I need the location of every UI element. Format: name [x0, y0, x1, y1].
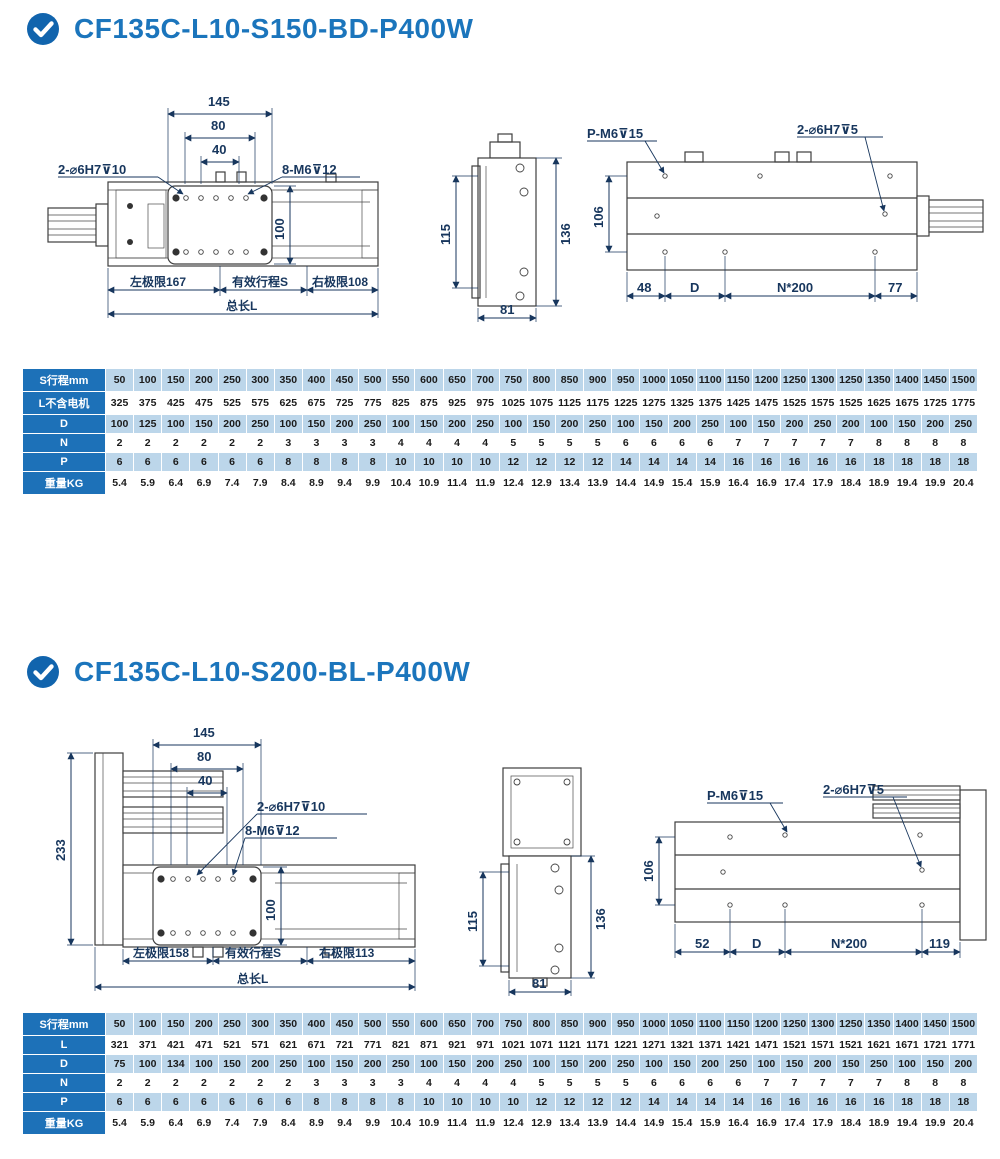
spec-cell: 6: [247, 1093, 274, 1111]
spec-cell: 6: [106, 1093, 133, 1111]
spec-cell: 4: [472, 1074, 499, 1092]
spec-cell: 1225: [612, 392, 639, 414]
spec-cell: 500: [359, 1013, 386, 1035]
spec-cell: 8: [331, 1093, 358, 1111]
spec-cell: 12.4: [500, 1112, 527, 1134]
seg-119: 119: [929, 936, 950, 951]
spec-cell: 875: [415, 392, 442, 414]
spec-cell: 2: [247, 434, 274, 452]
spec-cell: 150: [781, 1055, 808, 1073]
spec-cell: 150: [640, 415, 667, 433]
spec-cell: 12: [556, 453, 583, 471]
spec-cell: 200: [472, 1055, 499, 1073]
spec-cell: 200: [809, 1055, 836, 1073]
spec-cell: 14: [669, 453, 696, 471]
spec-cell: 950: [612, 1013, 639, 1035]
spec-cell: 3: [331, 434, 358, 452]
spec-cell: 100: [528, 1055, 555, 1073]
spec-cell: 1775: [950, 392, 977, 414]
spec-cell: 5: [528, 434, 555, 452]
spec-cell: 200: [359, 1055, 386, 1073]
spec-cell: 1571: [809, 1036, 836, 1054]
spec-cell: 13.9: [584, 1112, 611, 1134]
spec-cell: 125: [134, 415, 161, 433]
spec-cell: 600: [415, 1013, 442, 1035]
spec-cell: 1525: [837, 392, 864, 414]
page: { "page": { "accent": "#1b75bc", "check_…: [0, 0, 1000, 1159]
spec-cell: 100: [162, 415, 189, 433]
thread-callout: P-M6⊽15: [587, 126, 643, 141]
spec-cell: 5: [556, 434, 583, 452]
spec-cell: 1175: [584, 392, 611, 414]
spec-cell: 7.9: [247, 1112, 274, 1134]
right-limit-label: 右极限108: [311, 274, 368, 289]
spec-cell: 475: [190, 392, 217, 414]
dim-81: 81: [532, 976, 546, 991]
spec-cell: 16.9: [753, 472, 780, 494]
spec-cell: 921: [444, 1036, 471, 1054]
spec-cell: 10: [500, 1093, 527, 1111]
spec-cell: 1271: [640, 1036, 667, 1054]
spec-cell: 1150: [725, 369, 752, 391]
spec-row: L321371421471521571621671721771821871921…: [23, 1036, 977, 1054]
row-label: D: [23, 415, 105, 433]
spec-cell: 8: [303, 1093, 330, 1111]
spec-cell: 10.4: [387, 472, 414, 494]
row-label: D: [23, 1055, 105, 1073]
spec-cell: 300: [247, 1013, 274, 1035]
row-label: N: [23, 1074, 105, 1092]
spec-cell: 150: [556, 1055, 583, 1073]
spec-cell: 2: [162, 1074, 189, 1092]
dim-40: 40: [212, 142, 226, 157]
spec-cell: 6: [190, 453, 217, 471]
drawing1-side-view: 115 136 81: [428, 130, 603, 330]
spec-cell: 8: [894, 1074, 921, 1092]
spec-cell: 16: [781, 453, 808, 471]
spec-cell: 7: [837, 1074, 864, 1092]
spec-cell: 14.9: [640, 1112, 667, 1134]
spec-cell: 8.4: [275, 472, 302, 494]
spec-cell: 950: [612, 369, 639, 391]
spec-cell: 14: [612, 453, 639, 471]
spec-cell: 6: [219, 1093, 246, 1111]
spec-cell: 6: [697, 1074, 724, 1092]
spec-cell: 20.4: [950, 472, 977, 494]
spec-cell: 1350: [865, 369, 892, 391]
spec-cell: 150: [162, 369, 189, 391]
spec-cell: 2: [134, 1074, 161, 1092]
spec-cell: 100: [640, 1055, 667, 1073]
spec-cell: 150: [922, 1055, 949, 1073]
spec-cell: 13.9: [584, 472, 611, 494]
spec-cell: 7: [837, 434, 864, 452]
spec-cell: 100: [134, 369, 161, 391]
spec-cell: 18: [894, 453, 921, 471]
holes-callout: 2-⌀6H7⊽10: [257, 799, 325, 814]
row-label: N: [23, 434, 105, 452]
section-1-header: CF135C-L10-S150-BD-P400W: [26, 12, 473, 46]
drawing1-bottom-view: P-M6⊽15 2-⌀6H7⊽5 106 48 D N*200 77: [585, 110, 995, 328]
spec-cell: 200: [190, 369, 217, 391]
spec-cell: 200: [922, 415, 949, 433]
spec-row: N2222222333344445555666677777888: [23, 1074, 977, 1092]
spec-cell: 1350: [865, 1013, 892, 1035]
spec-cell: 5: [584, 1074, 611, 1092]
row-label: S行程mm: [23, 1013, 105, 1035]
dim-145: 145: [208, 94, 230, 109]
spec-cell: 450: [331, 369, 358, 391]
spec-cell: 471: [190, 1036, 217, 1054]
spec-cell: 100: [303, 1055, 330, 1073]
spec-cell: 1050: [669, 369, 696, 391]
spec-cell: 2: [190, 434, 217, 452]
spec-row: L不含电机32537542547552557562567572577582587…: [23, 392, 977, 414]
spec-table-2: S行程mm50100150200250300350400450500550600…: [22, 1012, 978, 1135]
spec-cell: 8: [387, 1093, 414, 1111]
spec-cell: 1275: [640, 392, 667, 414]
spec-cell: 1450: [922, 369, 949, 391]
spec-cell: 100: [190, 1055, 217, 1073]
dim-106: 106: [591, 206, 606, 228]
spec-cell: 5.9: [134, 472, 161, 494]
spec-cell: 721: [331, 1036, 358, 1054]
spec-cell: 7: [809, 434, 836, 452]
spec-cell: 7.9: [247, 472, 274, 494]
spec-row: P666666888810101010121212121414141416161…: [23, 453, 977, 471]
spec-cell: 6.9: [190, 472, 217, 494]
spec-cell: 6: [612, 434, 639, 452]
dim-81: 81: [500, 302, 514, 317]
spec-cell: 8: [894, 434, 921, 452]
spec-row: S行程mm50100150200250300350400450500550600…: [23, 1013, 977, 1035]
spec-cell: 4: [415, 1074, 442, 1092]
spec-cell: 1100: [697, 369, 724, 391]
spec-cell: 250: [697, 415, 724, 433]
spec-cell: 6.4: [162, 472, 189, 494]
spec-cell: 7: [781, 434, 808, 452]
spec-cell: 8.4: [275, 1112, 302, 1134]
spec-cell: 1500: [950, 369, 977, 391]
spec-cell: 16.9: [753, 1112, 780, 1134]
spec-cell: 1521: [837, 1036, 864, 1054]
spec-cell: 250: [275, 1055, 302, 1073]
spec-cell: 650: [444, 369, 471, 391]
spec-cell: 6: [640, 1074, 667, 1092]
screws-callout: 8-M6⊽12: [282, 162, 337, 177]
spec-cell: 250: [359, 415, 386, 433]
spec-cell: 871: [415, 1036, 442, 1054]
spec-cell: 16.4: [725, 472, 752, 494]
spec-cell: 7.4: [219, 472, 246, 494]
spec-cell: 15.9: [697, 1112, 724, 1134]
spec-cell: 12.9: [528, 472, 555, 494]
spec-cell: 10: [444, 1093, 471, 1111]
spec-cell: 2: [162, 434, 189, 452]
spec-cell: 1450: [922, 1013, 949, 1035]
spec-cell: 200: [950, 1055, 977, 1073]
spec-cell: 150: [444, 1055, 471, 1073]
spec-cell: 575: [247, 392, 274, 414]
spec-cell: 850: [556, 1013, 583, 1035]
spec-cell: 4: [415, 434, 442, 452]
spec-cell: 50: [106, 369, 133, 391]
spec-cell: 6: [669, 434, 696, 452]
pin-callout: 2-⌀6H7⊽5: [823, 782, 884, 797]
spec-cell: 18.4: [837, 472, 864, 494]
spec-cell: 12: [612, 1093, 639, 1111]
spec-cell: 6: [134, 453, 161, 471]
drawing-set-1: 145 80 40 2-⌀6H7⊽10 8-M6⊽12 100 左极限167 有…: [0, 72, 1000, 362]
spec-row: D751001341001502002501001502002501001502…: [23, 1055, 977, 1073]
spec-cell: 18: [922, 1093, 949, 1111]
spec-cell: 6: [190, 1093, 217, 1111]
spec-cell: 9.4: [331, 1112, 358, 1134]
spec-cell: 1771: [950, 1036, 977, 1054]
spec-cell: 250: [472, 415, 499, 433]
model-title-1: CF135C-L10-S150-BD-P400W: [74, 13, 473, 45]
spec-cell: 14: [669, 1093, 696, 1111]
spec-cell: 19.4: [894, 472, 921, 494]
spec-cell: 421: [162, 1036, 189, 1054]
spec-cell: 6.4: [162, 1112, 189, 1134]
check-circle-icon: [26, 655, 60, 689]
spec-cell: 250: [950, 415, 977, 433]
spec-cell: 16: [809, 453, 836, 471]
spec-cell: 250: [387, 1055, 414, 1073]
spec-cell: 771: [359, 1036, 386, 1054]
dim-145: 145: [193, 725, 215, 740]
spec-cell: 1250: [837, 369, 864, 391]
spec-cell: 200: [219, 415, 246, 433]
spec-cell: 5: [528, 1074, 555, 1092]
spec-cell: 2: [275, 1074, 302, 1092]
spec-cell: 6: [162, 1093, 189, 1111]
spec-cell: 15.4: [669, 472, 696, 494]
spec-cell: 100: [106, 415, 133, 433]
spec-cell: 1521: [781, 1036, 808, 1054]
spec-cell: 3: [387, 1074, 414, 1092]
thread-callout: P-M6⊽15: [707, 788, 763, 803]
spec-cell: 900: [584, 1013, 611, 1035]
spec-cell: 600: [415, 369, 442, 391]
spec-cell: 8: [331, 453, 358, 471]
spec-cell: 19.4: [894, 1112, 921, 1134]
spec-cell: 17.4: [781, 472, 808, 494]
spec-cell: 5: [612, 1074, 639, 1092]
spec-cell: 12: [528, 1093, 555, 1111]
spec-cell: 1625: [865, 392, 892, 414]
spec-cell: 75: [106, 1055, 133, 1073]
spec-cell: 1425: [725, 392, 752, 414]
spec-cell: 250: [584, 415, 611, 433]
spec-cell: 14: [697, 1093, 724, 1111]
spec-cell: 4: [387, 434, 414, 452]
spec-cell: 17.9: [809, 472, 836, 494]
spec-cell: 325: [106, 392, 133, 414]
spec-cell: 16: [837, 453, 864, 471]
row-label: L不含电机: [23, 392, 105, 414]
spec-cell: 14.9: [640, 472, 667, 494]
spec-cell: 1250: [781, 369, 808, 391]
spec-cell: 971: [472, 1036, 499, 1054]
spec-cell: 6: [697, 434, 724, 452]
spec-cell: 200: [584, 1055, 611, 1073]
spec-cell: 1221: [612, 1036, 639, 1054]
spec-cell: 571: [247, 1036, 274, 1054]
spec-cell: 10: [472, 1093, 499, 1111]
spec-cell: 7.4: [219, 1112, 246, 1134]
spec-cell: 1100: [697, 1013, 724, 1035]
drawing1-front-view: 145 80 40 2-⌀6H7⊽10 8-M6⊽12 100 左极限167 有…: [30, 74, 425, 329]
spec-cell: 8: [950, 1074, 977, 1092]
spec-cell: 625: [275, 392, 302, 414]
spec-cell: 6: [219, 453, 246, 471]
spec-cell: 250: [219, 1013, 246, 1035]
spec-cell: 425: [162, 392, 189, 414]
spec-cell: 300: [247, 369, 274, 391]
spec-cell: 13.4: [556, 472, 583, 494]
dim-40: 40: [198, 773, 212, 788]
spec-cell: 150: [219, 1055, 246, 1073]
spec-cell: 18.9: [865, 1112, 892, 1134]
spec-cell: 100: [894, 1055, 921, 1073]
spec-cell: 15.4: [669, 1112, 696, 1134]
spec-cell: 621: [275, 1036, 302, 1054]
spec-cell: 200: [444, 415, 471, 433]
spec-cell: 1400: [894, 1013, 921, 1035]
spec-cell: 700: [472, 1013, 499, 1035]
spec-cell: 800: [528, 369, 555, 391]
spec-cell: 375: [134, 392, 161, 414]
spec-cell: 150: [331, 1055, 358, 1073]
spec-cell: 521: [219, 1036, 246, 1054]
spec-cell: 200: [781, 415, 808, 433]
spec-cell: 200: [190, 1013, 217, 1035]
spec-cell: 8.9: [303, 1112, 330, 1134]
spec-cell: 8: [865, 434, 892, 452]
spec-cell: 8: [950, 434, 977, 452]
spec-cell: 1321: [669, 1036, 696, 1054]
spec-cell: 550: [387, 369, 414, 391]
spec-cell: 100: [134, 1013, 161, 1035]
left-limit-label: 左极限158: [132, 945, 189, 960]
spec-cell: 1525: [781, 392, 808, 414]
spec-cell: 10.4: [387, 1112, 414, 1134]
spec-cell: 1021: [500, 1036, 527, 1054]
spec-cell: 150: [753, 415, 780, 433]
spec-cell: 12: [500, 453, 527, 471]
spec-cell: 7: [725, 434, 752, 452]
spec-cell: 1000: [640, 1013, 667, 1035]
spec-cell: 14: [640, 1093, 667, 1111]
spec-cell: 12.9: [528, 1112, 555, 1134]
stroke-label: 有效行程S: [232, 274, 288, 289]
spec-cell: 200: [669, 415, 696, 433]
spec-cell: 1121: [556, 1036, 583, 1054]
spec-cell: 5.9: [134, 1112, 161, 1134]
spec-cell: 18: [922, 453, 949, 471]
spec-cell: 14: [725, 1093, 752, 1111]
spec-cell: 9.4: [331, 472, 358, 494]
spec-cell: 8: [303, 453, 330, 471]
spec-cell: 900: [584, 369, 611, 391]
spec-cell: 200: [837, 415, 864, 433]
row-label: P: [23, 1093, 105, 1111]
spec-cell: 8: [359, 1093, 386, 1111]
spec-cell: 825: [387, 392, 414, 414]
spec-cell: 10: [415, 453, 442, 471]
spec-cell: 10: [387, 453, 414, 471]
spec-cell: 5: [584, 434, 611, 452]
spec-cell: 1200: [753, 369, 780, 391]
seg-N200: N*200: [831, 936, 867, 951]
spec-cell: 350: [275, 1013, 302, 1035]
spec-cell: 100: [865, 415, 892, 433]
spec-cell: 100: [500, 415, 527, 433]
spec-cell: 150: [669, 1055, 696, 1073]
spec-cell: 1250: [837, 1013, 864, 1035]
spec-cell: 250: [247, 415, 274, 433]
model-title-2: CF135C-L10-S200-BL-P400W: [74, 656, 470, 688]
spec-cell: 150: [415, 415, 442, 433]
spec-cell: 2: [190, 1074, 217, 1092]
spec-cell: 18.4: [837, 1112, 864, 1134]
spec-cell: 1675: [894, 392, 921, 414]
section-2-header: CF135C-L10-S200-BL-P400W: [26, 655, 470, 689]
spec-cell: 1050: [669, 1013, 696, 1035]
spec-cell: 350: [275, 369, 302, 391]
spec-cell: 16: [865, 1093, 892, 1111]
spec-cell: 16: [753, 1093, 780, 1111]
check-circle-icon: [26, 12, 60, 46]
spec-cell: 2: [219, 1074, 246, 1092]
spec-row: S行程mm50100150200250300350400450500550600…: [23, 369, 977, 391]
dim-136: 136: [593, 908, 608, 930]
seg-77: 77: [888, 280, 902, 295]
spec-cell: 6: [162, 453, 189, 471]
dim-136: 136: [558, 223, 573, 245]
spec-cell: 16.4: [725, 1112, 752, 1134]
spec-cell: 100: [612, 415, 639, 433]
spec-cell: 12: [584, 453, 611, 471]
drawing2-bottom-view: P-M6⊽15 2-⌀6H7⊽5 106 52 D N*200 119: [635, 762, 1000, 987]
spec-cell: 150: [303, 415, 330, 433]
spec-cell: 12.4: [500, 472, 527, 494]
spec-cell: 150: [190, 415, 217, 433]
spec-cell: 4: [444, 434, 471, 452]
spec-cell: 18: [894, 1093, 921, 1111]
spec-cell: 1725: [922, 392, 949, 414]
spec-cell: 1325: [669, 392, 696, 414]
spec-cell: 20.4: [950, 1112, 977, 1134]
spec-table-1: S行程mm50100150200250300350400450500550600…: [22, 368, 978, 495]
dim-100: 100: [263, 899, 278, 921]
spec-cell: 750: [500, 369, 527, 391]
spec-cell: 1721: [922, 1036, 949, 1054]
spec-cell: 100: [725, 415, 752, 433]
spec-cell: 134: [162, 1055, 189, 1073]
spec-row: D100125100150200250100150200250100150200…: [23, 415, 977, 433]
spec-cell: 1200: [753, 1013, 780, 1035]
spec-cell: 3: [359, 1074, 386, 1092]
seg-N200: N*200: [777, 280, 813, 295]
spec-cell: 3: [303, 1074, 330, 1092]
dim-115: 115: [465, 911, 480, 932]
spec-cell: 250: [612, 1055, 639, 1073]
spec-cell: 450: [331, 1013, 358, 1035]
spec-cell: 16: [809, 1093, 836, 1111]
